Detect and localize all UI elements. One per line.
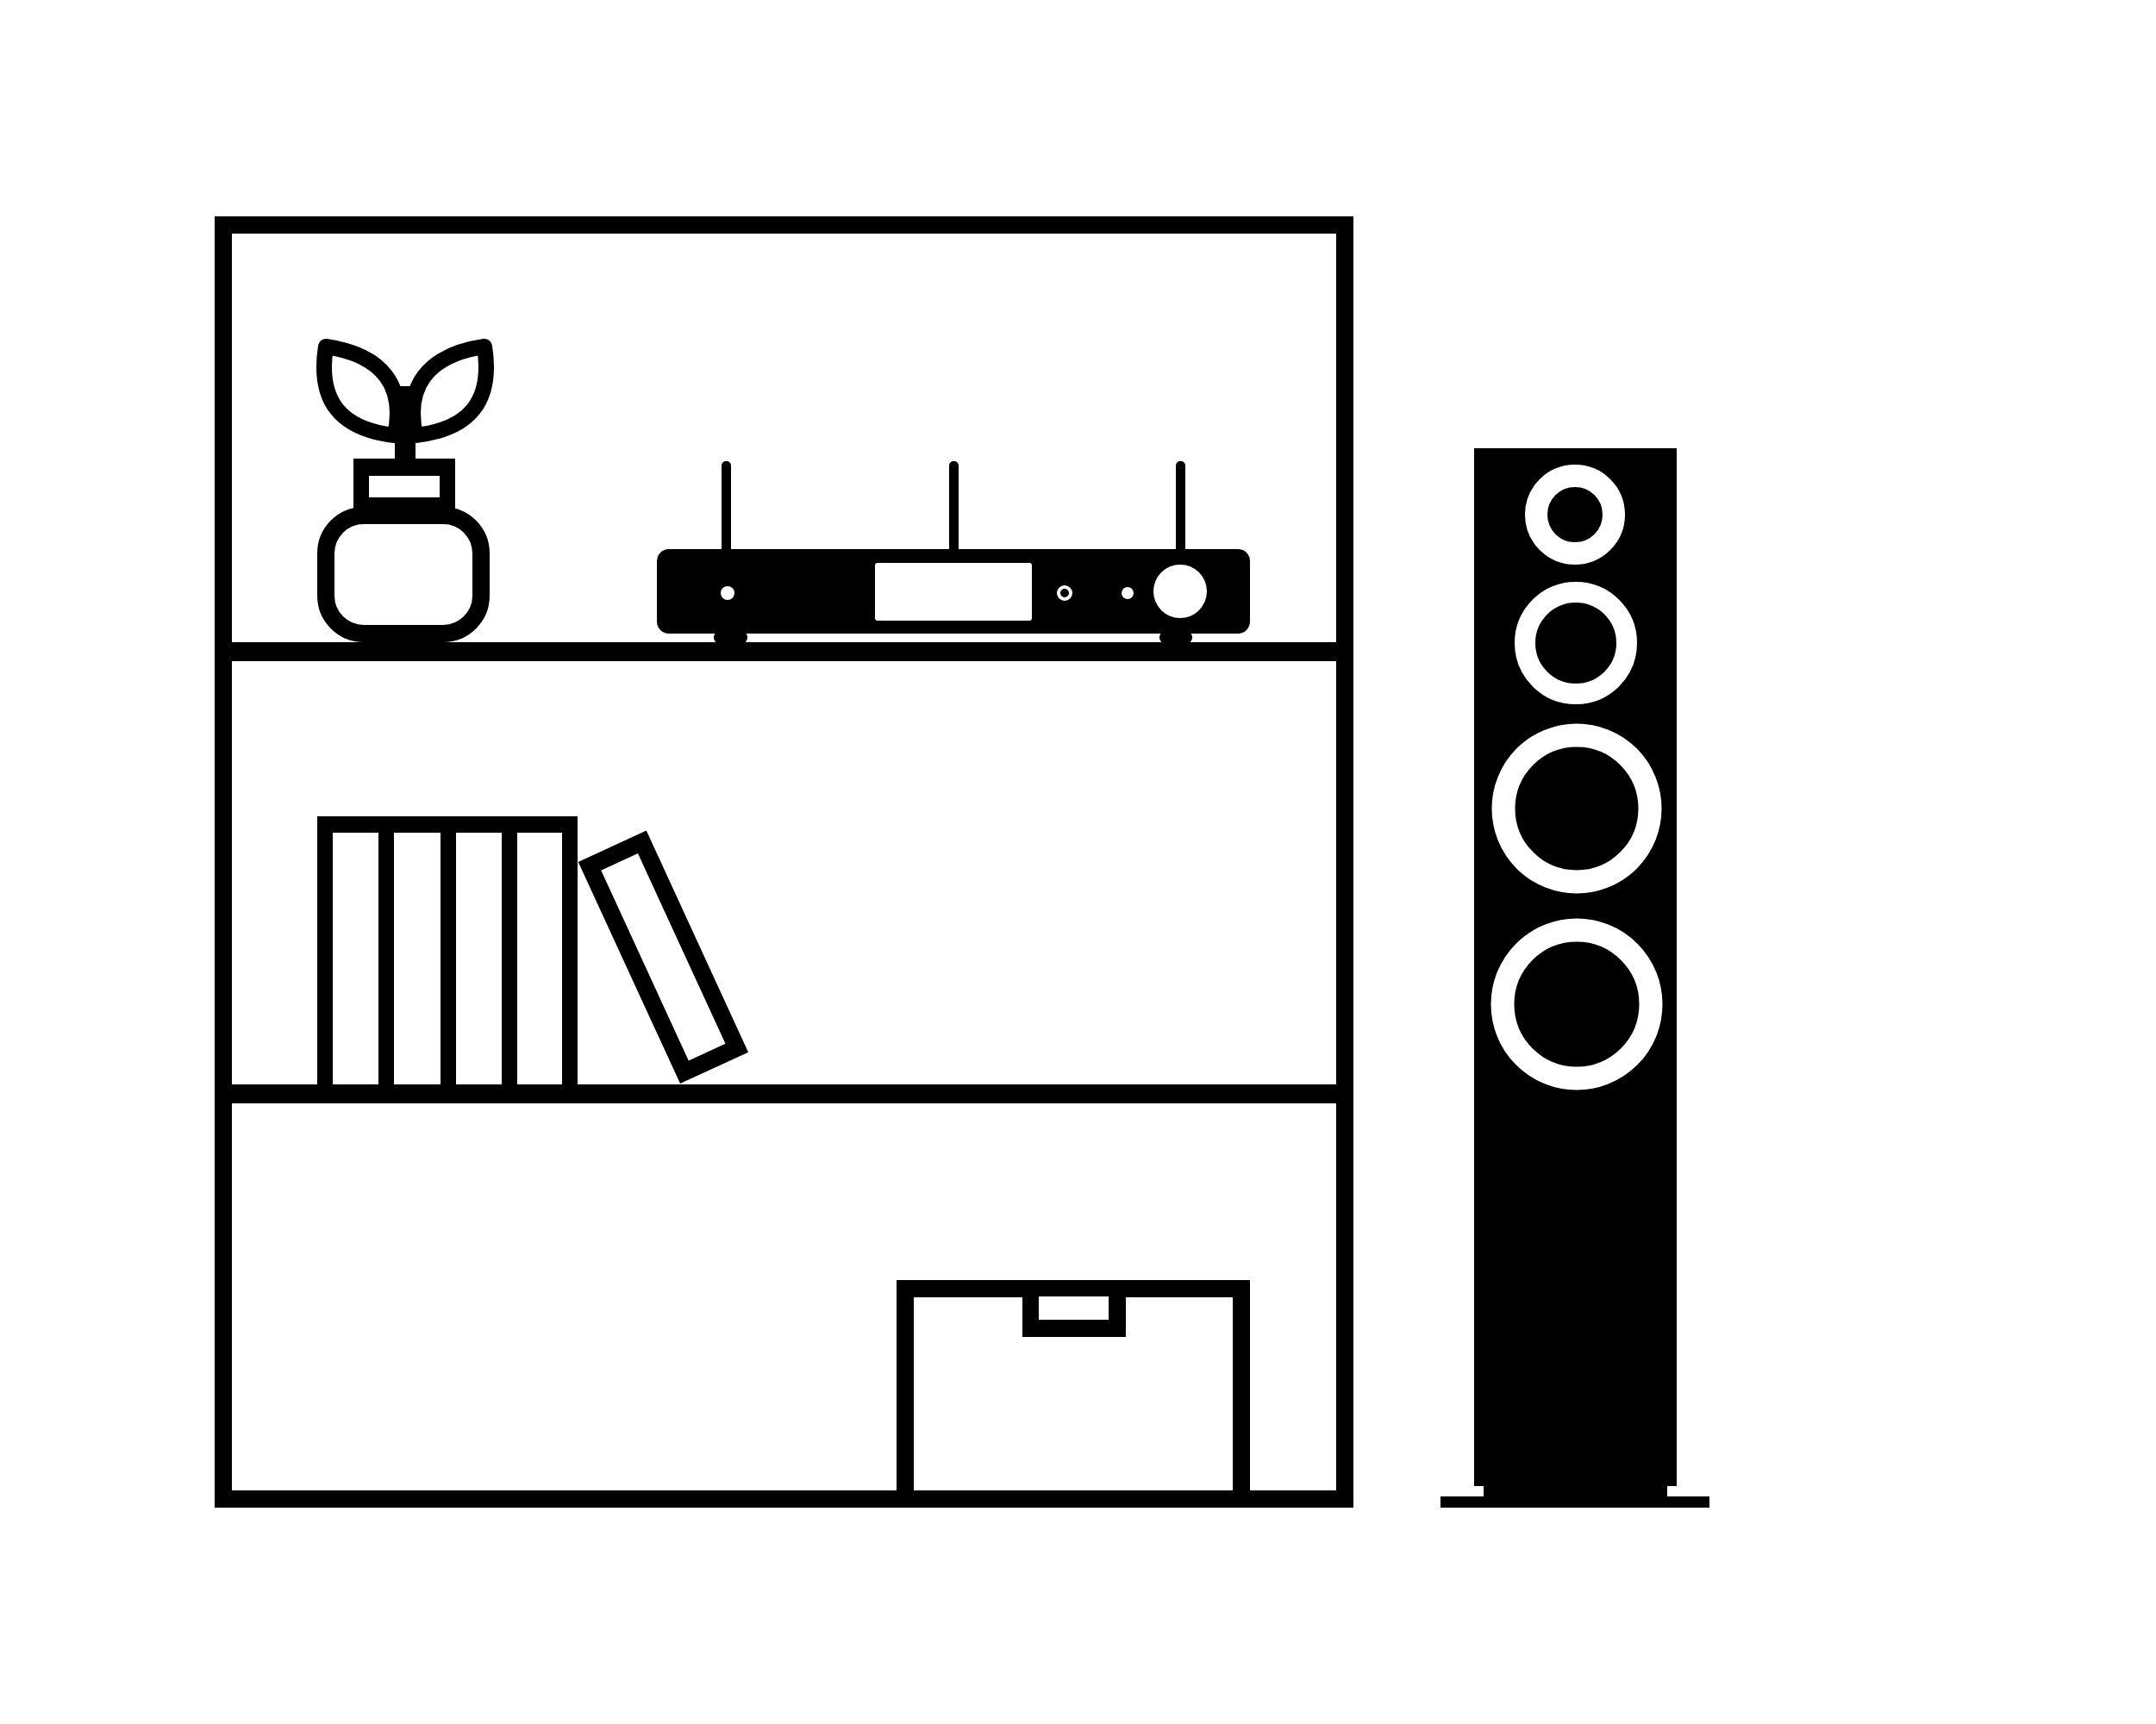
leaning-book <box>590 842 737 1072</box>
speaker-plinth <box>1484 1486 1667 1496</box>
plant-leaf-left <box>324 347 397 435</box>
potted-plant-icon <box>324 347 486 634</box>
storage-box-icon <box>905 1280 1241 1499</box>
book-spine-edge <box>502 816 517 1084</box>
book-spine-edge <box>317 816 333 1084</box>
speaker-base <box>1440 1496 1709 1508</box>
vase-neck-slot <box>369 476 440 497</box>
bookshelf-shelf-divider-top <box>215 642 1353 661</box>
receiver-antenna-middle <box>949 461 959 556</box>
receiver-display <box>875 563 1032 621</box>
book-spine-edge <box>378 816 394 1084</box>
book-spine-edge <box>441 816 456 1084</box>
book-spine-edge <box>562 816 578 1084</box>
receiver-indicator-dot <box>1122 587 1134 599</box>
scene <box>0 0 2156 1724</box>
box-handle-slot <box>1039 1296 1109 1320</box>
tower-speaker-icon <box>1440 448 1709 1508</box>
hifi-room-illustration <box>0 0 2156 1724</box>
books-row-icon <box>317 816 737 1084</box>
receiver-antenna-right <box>1176 461 1185 556</box>
stereo-receiver-icon <box>657 461 1250 643</box>
receiver-antenna-left <box>722 461 731 556</box>
bookshelf-shelf-divider-bottom <box>215 1084 1353 1103</box>
receiver-power-led <box>721 586 734 600</box>
receiver-volume-knob <box>1153 565 1207 618</box>
plant-leaf-right <box>413 347 486 435</box>
vase-body <box>326 515 481 634</box>
